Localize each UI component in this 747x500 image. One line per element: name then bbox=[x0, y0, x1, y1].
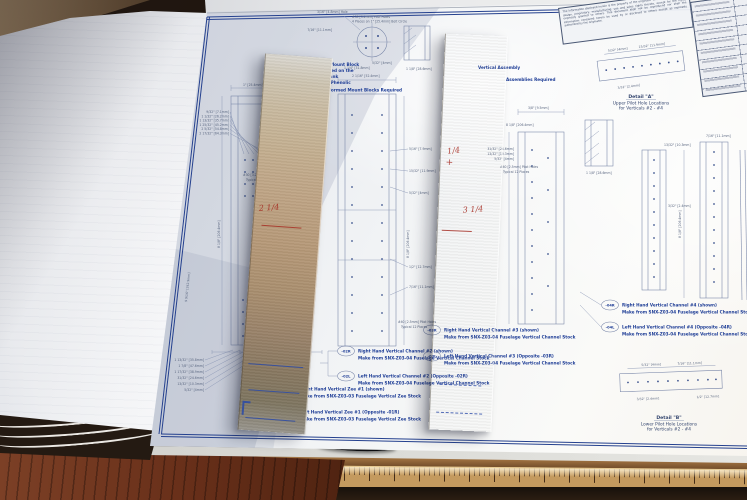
photo-scene: 1" [25.4mm] 8 1/8" [206.4mm] 9/32" [7.1m… bbox=[0, 0, 747, 500]
figure-channel-rightmid: 8 1/8" [206.4mm] 31/32" [24.6mm] 13/32" … bbox=[487, 106, 613, 324]
note-label: #30 [3.2mm] Pilot Holes bbox=[352, 15, 390, 19]
dim-label: 1/2" [12.7mm] bbox=[409, 265, 432, 269]
blue-scribe-line bbox=[245, 417, 295, 422]
part-line: Left Hand Vertical Channel #4 (Opposite … bbox=[622, 325, 732, 330]
dim-label: 8 1/8" [206.4mm] bbox=[406, 230, 410, 258]
note-label: 3/16" [4.8mm] Hole bbox=[317, 10, 348, 14]
dim-label: 3/32" [2.4mm] bbox=[668, 204, 691, 208]
red-handwritten-mark: 1/4 bbox=[447, 145, 461, 156]
dim-label: 1 1/8" [28.6mm] bbox=[586, 171, 612, 175]
dim-label: 5/32" [4mm] bbox=[372, 61, 392, 65]
hole-dots bbox=[351, 114, 383, 332]
dim-label: 3/32" [2.4mm] bbox=[637, 396, 660, 401]
part-callouts: -02R Right Hand Vertical Channel #2 (sho… bbox=[280, 292, 747, 422]
dim-label: 8 1/8" [206.4mm] bbox=[217, 220, 221, 248]
dim-label: 5/32" [4mm] bbox=[641, 362, 661, 367]
dim-label: 1 17/32" [38.9mm] bbox=[174, 370, 204, 374]
detail-b-line2: for Verticals #2 - #4 bbox=[647, 427, 691, 433]
part-line: Left Hand Vertical Zee #1 (Opposite -01R… bbox=[300, 410, 400, 415]
red-scribe-line bbox=[261, 225, 301, 229]
dim-label: 5/16" [7.9mm] bbox=[409, 147, 432, 151]
part-line: Right Hand Vertical Zee #1 (shown) bbox=[300, 387, 385, 392]
dim-label: 1 13/32" [35.8mm] bbox=[174, 358, 204, 362]
dim-label: 2 17/32" [64.3mm] bbox=[199, 132, 229, 136]
part-line: Make from SNX-Z03-03 Fuselage Vertical Z… bbox=[300, 417, 421, 422]
blue-corner-mark bbox=[242, 401, 251, 416]
dim-label: 1 7/8" [47.6mm] bbox=[178, 364, 204, 368]
dim-label: 7/16" [11.1mm] bbox=[307, 28, 332, 32]
detail-b-title: Detail "B" bbox=[656, 415, 681, 421]
detail-a-title: Detail "A" bbox=[628, 94, 653, 100]
note-line: (4) Formed Mount Blocks Required bbox=[320, 88, 402, 93]
dim-label: 8 1/8" [206.4mm] bbox=[506, 123, 534, 127]
hole-dots bbox=[531, 149, 549, 311]
dim-label: 9 9/16" [242.9mm] bbox=[184, 272, 191, 302]
dim-label: 7/16" [11.1mm] bbox=[706, 134, 731, 138]
dim-label: 8 1/8" [206.4mm] bbox=[678, 210, 682, 238]
note-label: #40 [2.5mm] Pilot Holes bbox=[500, 165, 538, 169]
dim-label: 13/32" [10.3mm] bbox=[177, 382, 204, 386]
dim-label: 13/32" [10.3mm] bbox=[664, 143, 691, 147]
blue-scribe-line bbox=[248, 389, 299, 394]
figure-channels-right: 8 1/8" [206.4mm] 13/32" [10.3mm] 7/16" [… bbox=[642, 134, 747, 300]
dim-label: 5/32" [4mm] bbox=[184, 388, 204, 392]
red-cross-mark: + bbox=[445, 158, 453, 168]
part-tag: -02L bbox=[342, 375, 351, 379]
figure-channel-center: 2 1/16" [52.4mm] 1 1/4" [31.8mm] 5/32" [… bbox=[338, 61, 436, 346]
part-tag: -04R bbox=[605, 304, 614, 308]
note-label: Typical 12 Places bbox=[400, 325, 428, 329]
blue-dashed-line bbox=[436, 412, 482, 415]
dim-label: 1" [25.4mm] bbox=[243, 83, 263, 87]
part-line: Make from SNX-Z03-04 Fuselage Vertical C… bbox=[622, 332, 747, 337]
dim-label: 5/32" [4mm] bbox=[409, 191, 429, 195]
dim-label: 3/32" [2.4mm] bbox=[617, 83, 640, 90]
dim-label: 1 1/8" [28.6mm] bbox=[406, 67, 432, 71]
part-tag: -02R bbox=[341, 350, 350, 354]
dim-label: 2 1/16" [52.4mm] bbox=[352, 74, 380, 78]
note-label: Typical 12 Places bbox=[502, 170, 530, 174]
detail-a-line2: for Verticals #2 - #4 bbox=[619, 106, 663, 112]
blueprint-drawing: 1" [25.4mm] 8 1/8" [206.4mm] 9/32" [7.1m… bbox=[0, 0, 747, 500]
dim-label: 31/32" [24.6mm] bbox=[177, 376, 204, 380]
blue-scribe-line bbox=[248, 363, 303, 368]
note-label: #40 [2.5mm] Pilot Holes bbox=[398, 320, 436, 324]
dim-label: 1/2" [12.7mm] bbox=[696, 394, 719, 399]
detail-b: 5/32" [4mm] 7/16" [11.1mm] 3/32" [2.4mm]… bbox=[619, 360, 722, 432]
part-line: Make from SNX-Z03-03 Fuselage Vertical Z… bbox=[300, 394, 421, 399]
dim-label: 7/16" [11.1mm] bbox=[409, 285, 434, 289]
detail-a: 5/32" [4mm] 15/32" [11.9mm] 3/32" [2.4mm… bbox=[596, 40, 686, 112]
part-line: Make from SNX-Z03-04 Fuselage Vertical C… bbox=[622, 310, 747, 315]
part-tag: -04L bbox=[606, 326, 615, 330]
red-handwritten-mark: 2 1/4 bbox=[259, 203, 280, 213]
dim-label: 3/8" [9.5mm] bbox=[528, 106, 549, 110]
dim-label: 7/16" [11.1mm] bbox=[677, 361, 702, 366]
note-label: 4 Places on 1" [25.4mm] Bolt Circle bbox=[352, 20, 407, 24]
part-line: Right Hand Vertical Channel #4 (shown) bbox=[622, 303, 717, 308]
red-handwritten-mark: 3 1/4 bbox=[462, 204, 483, 214]
note-line: Assemblies Required bbox=[506, 77, 555, 82]
red-scribe-line bbox=[442, 230, 472, 233]
dim-label: 15/32" [11.9mm] bbox=[409, 169, 436, 173]
blue-dashed-line bbox=[439, 384, 481, 387]
dim-label: 15/32" [11.9mm] bbox=[638, 42, 665, 49]
